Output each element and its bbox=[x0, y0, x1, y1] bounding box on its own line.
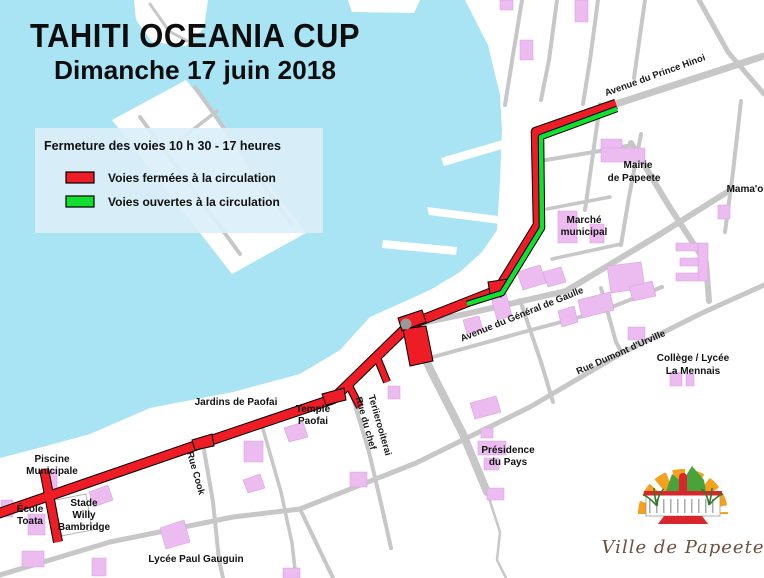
label-rue-dumont-durville: Rue Dumont d'Urville bbox=[575, 328, 667, 377]
label-ecole-toata-2: Toata bbox=[17, 516, 43, 527]
north-pier-strip bbox=[348, 0, 420, 13]
label-presidence: Présidence bbox=[481, 445, 535, 456]
closed-block bbox=[403, 326, 433, 366]
title-block: TAHITI OCEANIA CUP Dimanche 17 juin 2018 bbox=[30, 17, 360, 85]
label-stade: Stade bbox=[70, 498, 98, 509]
label-college: Collège / Lycée bbox=[657, 353, 730, 364]
legend: Fermeture des voies 10 h 30 - 17 heures … bbox=[35, 128, 323, 233]
label-marche: Marché bbox=[566, 215, 601, 226]
label-piscine-2: Municipale bbox=[26, 466, 78, 477]
map-subtitle: Dimanche 17 juin 2018 bbox=[54, 55, 336, 85]
ville-de-papeete-logo: Ville de Papeete bbox=[602, 466, 764, 558]
legend-label-open: Voies ouvertes à la circulation bbox=[108, 195, 280, 209]
rue-du-chef-road bbox=[352, 395, 391, 548]
logo-roof bbox=[644, 491, 722, 496]
legend-heading: Fermeture des voies 10 h 30 - 17 heures bbox=[44, 139, 281, 153]
logo-base bbox=[658, 516, 708, 524]
label-college-2: La Mennais bbox=[666, 366, 721, 377]
logo-text: Ville de Papeete bbox=[602, 537, 764, 558]
label-stade-2: Willy bbox=[72, 510, 96, 521]
map-canvas: Avenue du Prince Hinoi Avenue du Général… bbox=[0, 0, 764, 578]
roundabout bbox=[401, 319, 412, 330]
logo-dome bbox=[679, 473, 687, 481]
label-presidence-2: du Pays bbox=[489, 457, 528, 468]
label-stade-3: Bambridge bbox=[58, 522, 111, 533]
legend-label-closed: Voies fermées à la circulation bbox=[108, 171, 276, 185]
label-marche-2: municipal bbox=[561, 227, 608, 238]
label-mairie: Mairie bbox=[624, 160, 653, 171]
legend-swatch-open bbox=[66, 196, 94, 207]
label-piscine: Piscine bbox=[34, 454, 69, 465]
legend-swatch-closed bbox=[66, 172, 94, 183]
label-mamao: Mama'o bbox=[727, 184, 764, 195]
label-temple-paofai: Temple bbox=[296, 404, 331, 415]
label-jardins-de-paofai: Jardins de Paofai bbox=[195, 397, 278, 408]
label-temple-paofai-2: Paofai bbox=[298, 416, 328, 427]
label-mairie-2: de Papeete bbox=[608, 173, 661, 184]
label-ecole-toata: École bbox=[17, 502, 44, 515]
road-closure-map: Avenue du Prince Hinoi Avenue du Général… bbox=[0, 0, 764, 578]
label-lycee-gauguin: Lycée Paul Gauguin bbox=[148, 554, 243, 565]
map-title: TAHITI OCEANIA CUP bbox=[30, 17, 360, 54]
